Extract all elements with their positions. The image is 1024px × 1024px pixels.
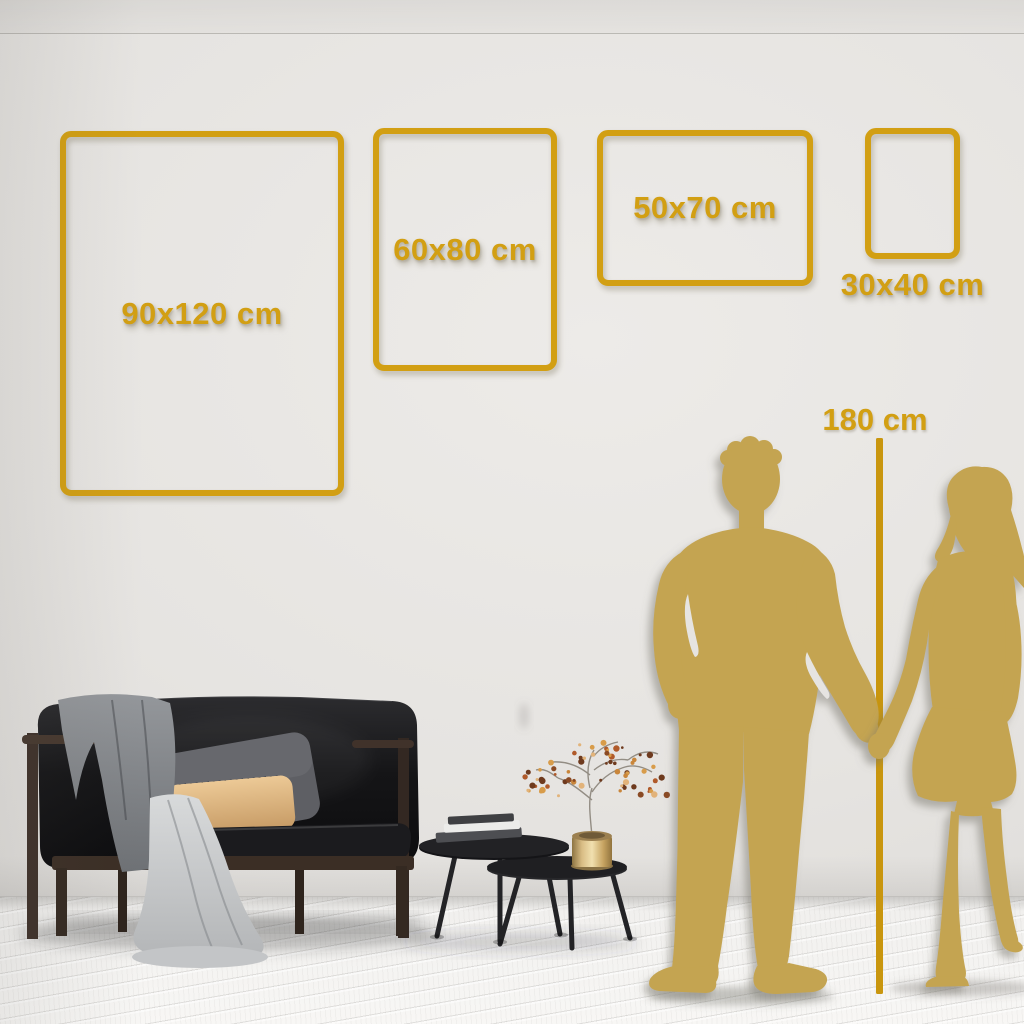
size-label-60x80: 60x80 cm	[393, 232, 537, 268]
size-label-30x40: 30x40 cm	[841, 267, 985, 303]
sofa-wood-rail	[52, 856, 414, 870]
size-label-50x70: 50x70 cm	[633, 190, 777, 226]
size-frame-90x120: 90x120 cm	[60, 131, 344, 496]
size-frame-30x40: 30x40 cm	[865, 128, 960, 259]
wall-art-size-guide: 90x120 cm 60x80 cm 50x70 cm 30x40 cm 180…	[0, 0, 1024, 1024]
size-label-90x120: 90x120 cm	[121, 296, 282, 332]
woman-silhouette	[868, 466, 1024, 987]
height-reference-label: 180 cm	[800, 402, 950, 438]
wall-smudge	[519, 703, 529, 729]
size-frame-60x80: 60x80 cm	[373, 128, 557, 371]
man-silhouette	[649, 436, 882, 994]
size-frame-50x70: 50x70 cm	[597, 130, 813, 286]
sofa-wood-post-left	[27, 733, 38, 939]
